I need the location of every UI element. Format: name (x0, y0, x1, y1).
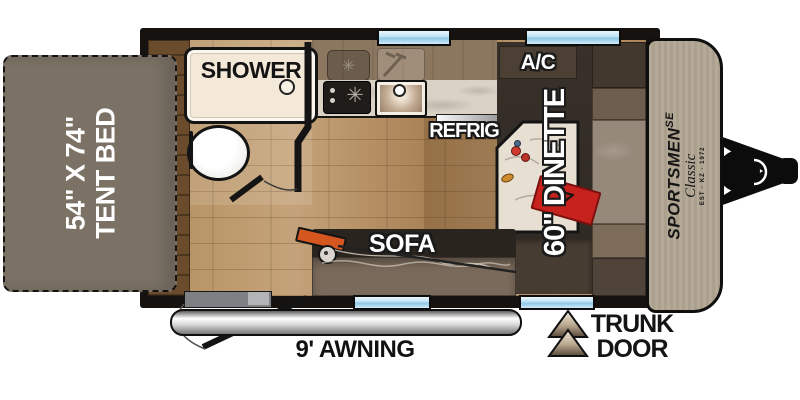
awning-label: 9' AWNING (265, 336, 445, 364)
sofa-stitching (322, 261, 510, 267)
propane-tank-icon (718, 150, 760, 192)
dinette-label: 60" DINETTE (540, 88, 573, 255)
brand-series: SE (664, 112, 676, 128)
awning-tube (170, 309, 522, 336)
sofa-label: SOFA (352, 230, 452, 259)
floorplan-scene: ✳ ✳ A/C 7 SHOWER 54" X (0, 0, 800, 400)
brand-name: SPORTSMEN (664, 127, 683, 239)
trunk-door-label-line2: DOOR (586, 335, 678, 364)
brand-model: Classic (682, 112, 699, 240)
refrigerator-label: REFRIG (424, 120, 504, 143)
dinette-label-wrap: 60" DINETTE (496, 82, 616, 262)
door-swing-arc (264, 181, 297, 190)
brand-est-line: EST · KZ · 1972 (699, 112, 705, 240)
brand-badge: SPORTSMENSE Classic EST · KZ · 1972 (664, 112, 706, 240)
faucet-ghost-icon (384, 53, 406, 76)
bathroom-wall (298, 42, 308, 192)
hitch-coupler (778, 158, 798, 184)
bathroom-door-leaf (231, 177, 262, 200)
front-cap: SPORTSMENSE Classic EST · KZ · 1972 (646, 38, 723, 313)
